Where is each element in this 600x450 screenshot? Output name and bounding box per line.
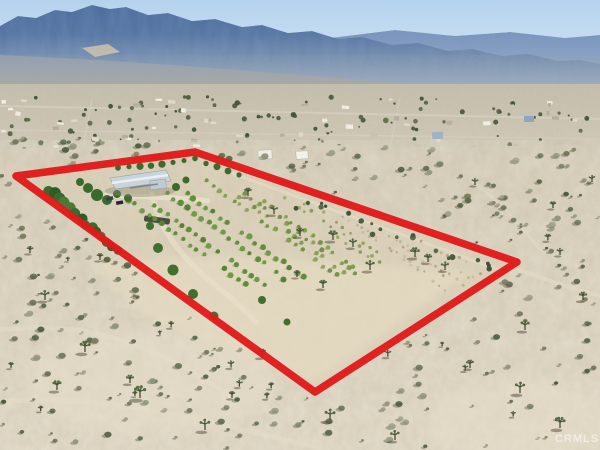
shrub — [131, 300, 134, 303]
orchard-plant — [249, 273, 255, 279]
shrub — [112, 323, 119, 328]
shrub — [385, 401, 390, 405]
orchard-plant — [479, 272, 482, 275]
shrub — [570, 196, 572, 198]
orchard-plant — [281, 258, 287, 264]
shrub — [319, 204, 324, 209]
town-house — [122, 135, 128, 139]
joshua-shadow — [320, 421, 332, 425]
orchard-plant — [225, 220, 230, 225]
joshua-tuft — [555, 419, 558, 422]
shrub — [549, 249, 555, 253]
edge-tree — [170, 160, 175, 165]
orchard-plant — [286, 238, 291, 243]
edge-tree — [148, 163, 154, 169]
orchard-plant — [420, 240, 423, 243]
aerial-photo: CRMLS — [0, 0, 600, 450]
town-tree — [120, 138, 122, 140]
orchard-plant — [184, 204, 190, 210]
shrub — [54, 291, 59, 295]
joshua-tuft — [128, 375, 130, 377]
joshua-tuft — [472, 361, 474, 363]
orchard-plant — [311, 233, 315, 237]
orchard-plant — [343, 233, 346, 236]
orchard-plant — [158, 208, 163, 213]
shrub — [440, 198, 444, 201]
town-tree — [88, 121, 93, 126]
orchard-plant — [340, 261, 344, 265]
orchard-plant — [233, 200, 237, 204]
shrub-shadow — [209, 355, 213, 357]
orchard-plant — [299, 241, 303, 245]
joshua-tuft — [200, 421, 203, 424]
orchard-plant — [375, 239, 377, 241]
joshua-tuft — [238, 380, 240, 382]
shrub — [566, 164, 570, 167]
orchard-plant — [246, 233, 252, 239]
joshua-tuft — [352, 238, 354, 240]
scene: CRMLS — [0, 0, 600, 450]
town-tree — [324, 123, 328, 127]
orchard-plant — [226, 236, 231, 241]
town-tree — [10, 124, 14, 128]
shrub-shadow — [507, 241, 511, 243]
joshua-shadow — [382, 357, 390, 359]
shrub — [81, 331, 84, 333]
shrub-shadow — [423, 336, 426, 337]
joshua-tuft — [430, 255, 432, 257]
shrub-shadow — [568, 198, 571, 199]
shrub — [398, 388, 404, 393]
yard-tree — [76, 178, 84, 186]
shrub-shadow — [577, 196, 581, 198]
orchard-plant — [406, 245, 409, 248]
orchard-plant — [347, 219, 349, 221]
town-tree — [383, 118, 389, 124]
joshua-shadow — [362, 271, 373, 274]
shrub-shadow — [93, 353, 96, 355]
town-tree — [499, 111, 502, 114]
shrub — [16, 257, 23, 262]
orchard-plant — [228, 272, 234, 278]
joshua-tuft — [270, 382, 272, 384]
orchard-plant — [289, 221, 292, 224]
joshua-shadow — [49, 391, 60, 394]
shrub — [471, 405, 474, 407]
orchard-plant — [378, 260, 382, 264]
joshua-tuft — [522, 384, 525, 387]
town-tree — [206, 95, 209, 98]
orchard-plant — [234, 262, 239, 267]
orchard-plant — [301, 274, 307, 280]
town-house — [483, 121, 491, 126]
town-tree — [95, 109, 97, 111]
joshua-tuft — [390, 351, 392, 353]
shrub — [44, 371, 51, 376]
orchard-plant — [341, 226, 345, 230]
shrub — [17, 214, 22, 218]
joshua-tuft — [233, 361, 235, 363]
orchard-plant — [472, 276, 475, 279]
orchard-plant — [402, 258, 405, 261]
orchard-plant — [333, 265, 337, 269]
orchard-plant — [258, 210, 261, 213]
shrub — [427, 170, 433, 174]
orchard-plant — [263, 206, 267, 210]
shrub — [82, 370, 86, 373]
orchard-plant — [442, 274, 445, 277]
joshua-shadow — [554, 255, 562, 257]
joshua-tuft — [397, 432, 400, 435]
town-tree — [359, 115, 364, 120]
shrub — [487, 264, 491, 268]
joshua-tuft — [321, 280, 323, 282]
shrub-shadow — [304, 399, 307, 400]
joshua-tuft — [168, 322, 170, 324]
orchard-plant — [132, 201, 136, 205]
shrub — [545, 436, 548, 438]
orchard-plant — [265, 250, 271, 256]
orchard-plant — [430, 263, 432, 265]
shrub — [526, 295, 533, 300]
town-house — [236, 135, 243, 137]
orchard-plant — [171, 197, 175, 201]
town-tree — [331, 131, 333, 133]
joshua-tuft — [335, 232, 338, 235]
joshua-tuft — [171, 321, 173, 323]
joshua-shadow — [510, 394, 522, 398]
town-house — [1, 100, 6, 104]
shrub — [294, 206, 299, 211]
shrub — [354, 176, 359, 180]
shrub — [537, 437, 540, 439]
joshua-tuft — [325, 411, 328, 414]
town-house — [133, 103, 141, 107]
joshua-tuft — [158, 331, 159, 332]
shrub — [563, 151, 569, 156]
shrub — [554, 216, 561, 221]
orchard-plant — [175, 219, 179, 223]
orchard-plant — [273, 256, 279, 262]
shrub-shadow — [490, 216, 493, 217]
joshua-tuft — [417, 249, 420, 252]
shrub — [537, 153, 543, 158]
shrub — [475, 340, 480, 344]
shrub — [518, 273, 522, 276]
shrub — [580, 265, 585, 269]
town-tree — [183, 95, 187, 99]
joshua-shadow — [463, 369, 472, 372]
edge-tree — [136, 163, 143, 170]
orchard-plant — [407, 249, 410, 252]
joshua-tuft — [41, 406, 42, 407]
orchard-plant — [375, 250, 378, 253]
orchard-plant — [396, 251, 398, 253]
orchard-plant — [399, 240, 402, 243]
shrub — [582, 259, 585, 262]
joshua-tuft — [444, 261, 446, 263]
shrub — [132, 287, 139, 293]
joshua-shadow — [36, 412, 42, 414]
shrub — [104, 432, 111, 438]
town-house — [211, 121, 217, 124]
joshua-tuft — [268, 393, 270, 395]
joshua-tuft — [393, 430, 396, 433]
shrub — [306, 201, 310, 205]
shrub — [408, 167, 412, 170]
joshua-shadow — [293, 237, 302, 240]
shrub — [65, 303, 69, 306]
town-house — [319, 106, 325, 111]
joshua-shadow — [576, 301, 585, 304]
orchard-plant — [166, 227, 171, 232]
town-tree — [415, 128, 419, 132]
orchard-plant — [260, 220, 264, 224]
shrub — [406, 341, 410, 344]
joshua-tuft — [390, 432, 393, 435]
shrub — [492, 215, 495, 217]
orchard-plant — [198, 216, 204, 222]
orchard-plant — [200, 237, 206, 243]
shrub — [61, 265, 64, 268]
town-tree — [175, 110, 178, 113]
joshua-tuft — [143, 388, 146, 391]
joshua-shadow — [550, 429, 562, 433]
shrub — [15, 320, 19, 323]
town-house — [548, 103, 551, 107]
shrub — [436, 161, 443, 167]
shrub — [197, 386, 202, 390]
shrub — [449, 254, 455, 260]
shrub — [395, 235, 399, 239]
shrub — [278, 396, 283, 400]
joshua-tuft — [447, 263, 449, 265]
joshua-tuft — [27, 247, 29, 249]
orchard-plant — [217, 188, 222, 193]
joshua-tuft — [82, 341, 85, 344]
shrub — [1, 400, 6, 404]
shrub — [19, 226, 25, 231]
joshua-tuft — [372, 262, 375, 265]
orchard-tree — [258, 296, 266, 304]
town-tree — [358, 126, 360, 128]
orchard-plant — [252, 205, 256, 209]
town-tree — [393, 102, 395, 104]
shrub — [361, 439, 364, 441]
joshua-tuft — [80, 343, 83, 346]
shrub — [49, 298, 52, 301]
shrub — [204, 350, 209, 354]
joshua-tuft — [271, 382, 273, 384]
joshua-tuft — [365, 262, 368, 265]
shrub — [306, 397, 309, 399]
shrub — [558, 363, 561, 366]
shrub — [37, 274, 40, 276]
joshua-tuft — [30, 246, 32, 248]
orchard-plant — [320, 254, 324, 258]
shrub — [289, 163, 296, 168]
shrub — [328, 150, 335, 155]
shrub — [577, 354, 583, 359]
shrub — [7, 182, 12, 186]
shrub — [524, 223, 528, 226]
shrub — [568, 207, 573, 211]
shrub — [292, 168, 296, 171]
shrub — [388, 423, 396, 429]
town-house — [152, 127, 156, 130]
joshua-tuft — [412, 247, 415, 250]
orchard-plant — [331, 251, 335, 255]
joshua-tuft — [88, 343, 91, 346]
shrub — [113, 261, 118, 265]
town-tree — [329, 95, 334, 100]
joshua-tuft — [39, 406, 40, 407]
joshua-tuft — [69, 257, 70, 258]
joshua-tuft — [54, 380, 57, 383]
joshua-tuft — [100, 253, 102, 255]
shrub-shadow — [79, 333, 82, 334]
orchard-plant — [335, 272, 340, 277]
town-tree — [579, 129, 583, 133]
edge-tree — [158, 161, 165, 168]
joshua-tuft — [246, 188, 248, 190]
joshua-tuft — [561, 417, 564, 420]
shrub — [199, 355, 202, 357]
shrub — [423, 166, 429, 171]
town-house — [204, 118, 209, 123]
joshua-tuft — [579, 293, 581, 295]
town-tree — [413, 119, 418, 124]
shrub — [95, 351, 98, 353]
shrub — [239, 150, 246, 155]
joshua-tuft — [272, 205, 274, 207]
shrub — [491, 370, 495, 373]
shrub — [109, 397, 112, 400]
shrub — [138, 436, 143, 440]
joshua-shadow — [37, 301, 48, 304]
shrub — [57, 254, 62, 258]
shrub — [218, 419, 225, 425]
shrub — [51, 225, 56, 229]
shrub — [91, 338, 99, 344]
shrub — [167, 395, 170, 397]
town-tree — [305, 101, 308, 104]
shrub — [354, 154, 360, 159]
shrub — [403, 419, 410, 424]
shrub — [554, 381, 558, 384]
town-tree — [34, 96, 38, 100]
joshua-tuft — [40, 292, 43, 295]
orchard-plant — [335, 221, 338, 224]
joshua-tuft — [230, 391, 232, 393]
orchard-tree — [168, 265, 179, 276]
joshua-tuft — [474, 178, 476, 180]
town-tree — [267, 113, 271, 117]
town-tree — [568, 115, 570, 117]
orchard-plant — [301, 247, 305, 251]
shrub — [338, 406, 345, 411]
orchard-plant — [205, 178, 209, 182]
orchard-plant — [206, 243, 212, 249]
orchard-tree — [153, 243, 163, 253]
town-house — [546, 111, 549, 115]
orchard-plant — [212, 224, 218, 230]
orchard-plant — [152, 216, 157, 221]
joshua-tuft — [428, 254, 430, 256]
orchard-plant — [140, 208, 145, 213]
orchard-plant — [243, 191, 248, 196]
shrub — [301, 420, 304, 422]
joshua-tuft — [230, 360, 232, 362]
orchard-plant — [186, 191, 191, 196]
joshua-shadow — [325, 241, 336, 244]
shrub — [434, 249, 439, 254]
shrub — [465, 198, 472, 203]
shrub — [537, 179, 543, 183]
orchard-plant — [458, 256, 461, 259]
town-house — [323, 128, 330, 132]
shrub — [573, 214, 577, 217]
joshua-tuft — [270, 207, 272, 209]
town-tree — [507, 113, 510, 116]
orchard-plant — [403, 255, 406, 258]
shrub-shadow — [595, 218, 599, 220]
joshua-tuft — [208, 421, 211, 424]
shrub — [61, 248, 67, 253]
shrub — [346, 211, 351, 216]
shrub — [72, 153, 79, 158]
shrub — [318, 163, 321, 165]
shrub — [76, 372, 79, 374]
orchard-plant — [467, 276, 470, 279]
joshua-shadow — [166, 328, 173, 330]
joshua-shadow — [64, 261, 69, 262]
blue-roof-building — [524, 116, 534, 122]
shrub — [459, 174, 463, 177]
shrub — [2, 423, 5, 425]
joshua-shadow — [241, 197, 250, 200]
shrub — [224, 405, 230, 410]
shrub — [359, 218, 364, 223]
joshua-shadow — [226, 398, 234, 400]
town-tree — [442, 120, 445, 123]
orchard-plant — [329, 225, 332, 228]
town-tree — [424, 101, 428, 105]
shrub — [12, 336, 18, 341]
shrub — [241, 375, 247, 379]
yard-tree — [83, 183, 93, 193]
orchard-plant — [356, 224, 359, 227]
joshua-tuft — [591, 175, 593, 177]
shrub — [491, 184, 496, 188]
shrub — [20, 234, 26, 239]
shrub — [73, 439, 79, 444]
orchard-plant — [240, 246, 246, 252]
town-house — [1, 130, 6, 132]
shrub — [24, 138, 28, 141]
joshua-tuft — [470, 360, 472, 362]
orchard-plant — [278, 215, 282, 219]
joshua-tuft — [102, 254, 104, 256]
joshua-tuft — [85, 341, 88, 344]
shrub-shadow — [211, 350, 214, 351]
town-tree — [391, 122, 393, 124]
shrub — [370, 222, 373, 225]
town-tree — [558, 112, 561, 115]
shrub — [495, 211, 500, 215]
shrub — [76, 386, 82, 390]
town-house — [156, 99, 163, 101]
